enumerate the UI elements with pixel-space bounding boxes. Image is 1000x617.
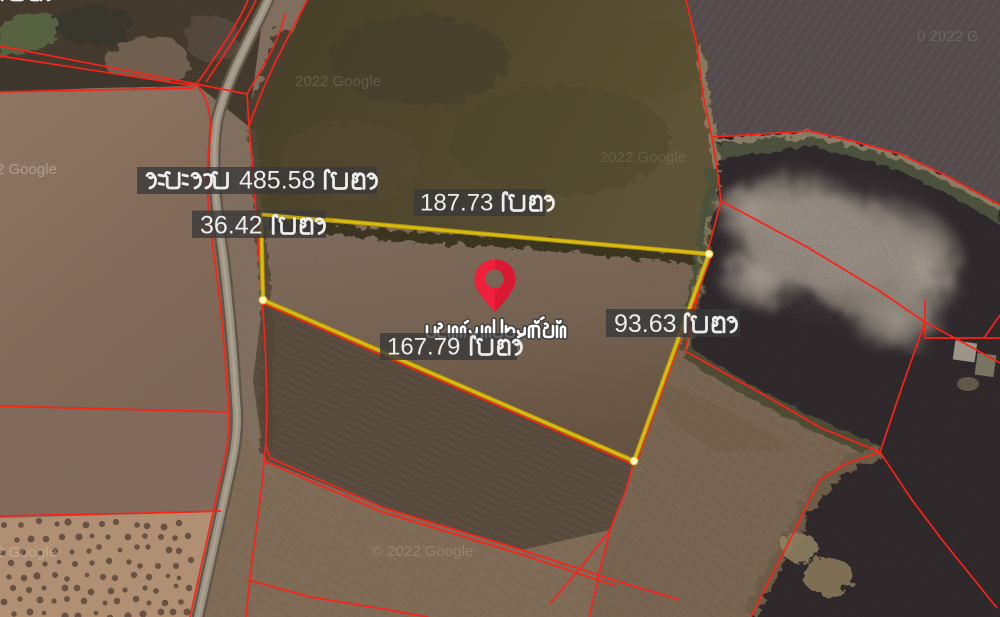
svg-text:0 2022 G: 0 2022 G bbox=[917, 28, 979, 45]
svg-text:93.63: 93.63 bbox=[614, 310, 677, 338]
svg-text:187.73: 187.73 bbox=[420, 190, 493, 217]
svg-text:485.58: 485.58 bbox=[239, 167, 315, 195]
svg-text:2 Google: 2 Google bbox=[0, 544, 57, 561]
svg-text:2 Google: 2 Google bbox=[0, 161, 57, 178]
svg-text:36.42: 36.42 bbox=[200, 212, 263, 240]
svg-text:2022 Google: 2022 Google bbox=[600, 149, 686, 166]
svg-text:© 2022 Google: © 2022 Google bbox=[372, 543, 473, 560]
svg-text:2022 Google: 2022 Google bbox=[295, 73, 381, 90]
svg-text:167.79: 167.79 bbox=[387, 334, 460, 361]
